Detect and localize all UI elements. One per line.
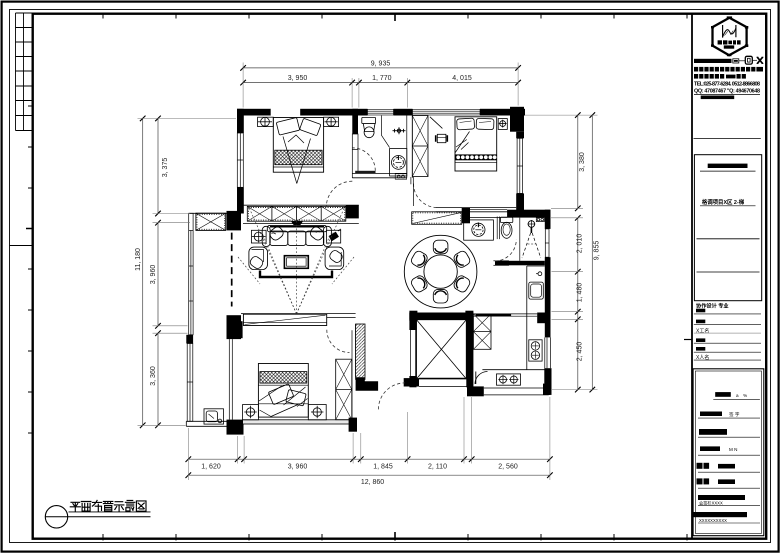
svg-text:1, 845: 1, 845 — [373, 463, 393, 470]
svg-text:4, 015: 4, 015 — [452, 75, 472, 82]
svg-text:3, 960: 3, 960 — [150, 265, 157, 285]
svg-text:1, 770: 1, 770 — [372, 75, 392, 82]
svg-text:2, 110: 2, 110 — [428, 463, 447, 470]
svg-text:2, 010: 2, 010 — [577, 234, 584, 254]
svg-text:TEL:025-877-6284. 0512-8866808: TEL:025-877-6284. 0512-8866808 — [694, 81, 760, 87]
svg-text:M N: M N — [729, 447, 737, 452]
svg-text:3, 360: 3, 360 — [150, 366, 157, 386]
svg-text:3, 375: 3, 375 — [162, 158, 169, 178]
svg-text:3, 960: 3, 960 — [288, 463, 308, 470]
svg-text:1, 480: 1, 480 — [577, 283, 584, 303]
svg-text:2, 450: 2, 450 — [577, 342, 584, 362]
svg-text:9, 935: 9, 935 — [371, 60, 391, 67]
svg-text:3, 950: 3, 950 — [288, 75, 308, 82]
svg-text:1, 620: 1, 620 — [201, 463, 221, 470]
svg-text:格调项目X区 2-梯: 格调项目X区 2-梯 — [702, 198, 745, 206]
svg-text:9, 855: 9, 855 — [594, 241, 601, 261]
svg-text:协作设计 专业: 协作设计 专业 — [696, 302, 729, 310]
svg-text:2, 560: 2, 560 — [498, 463, 518, 470]
svg-text:a %: a % — [736, 393, 747, 398]
svg-text:QQ: 47087467 "Q: 494670648: QQ: 47087467 "Q: 494670648 — [694, 88, 760, 94]
svg-text:签 字: 签 字 — [729, 411, 740, 417]
svg-text:12, 860: 12, 860 — [361, 479, 384, 486]
svg-text:3, 380: 3, 380 — [579, 152, 586, 172]
svg-text:11, 180: 11, 180 — [135, 248, 142, 271]
svg-text:XXXXXXXXXX: XXXXXXXXXX — [699, 518, 727, 523]
